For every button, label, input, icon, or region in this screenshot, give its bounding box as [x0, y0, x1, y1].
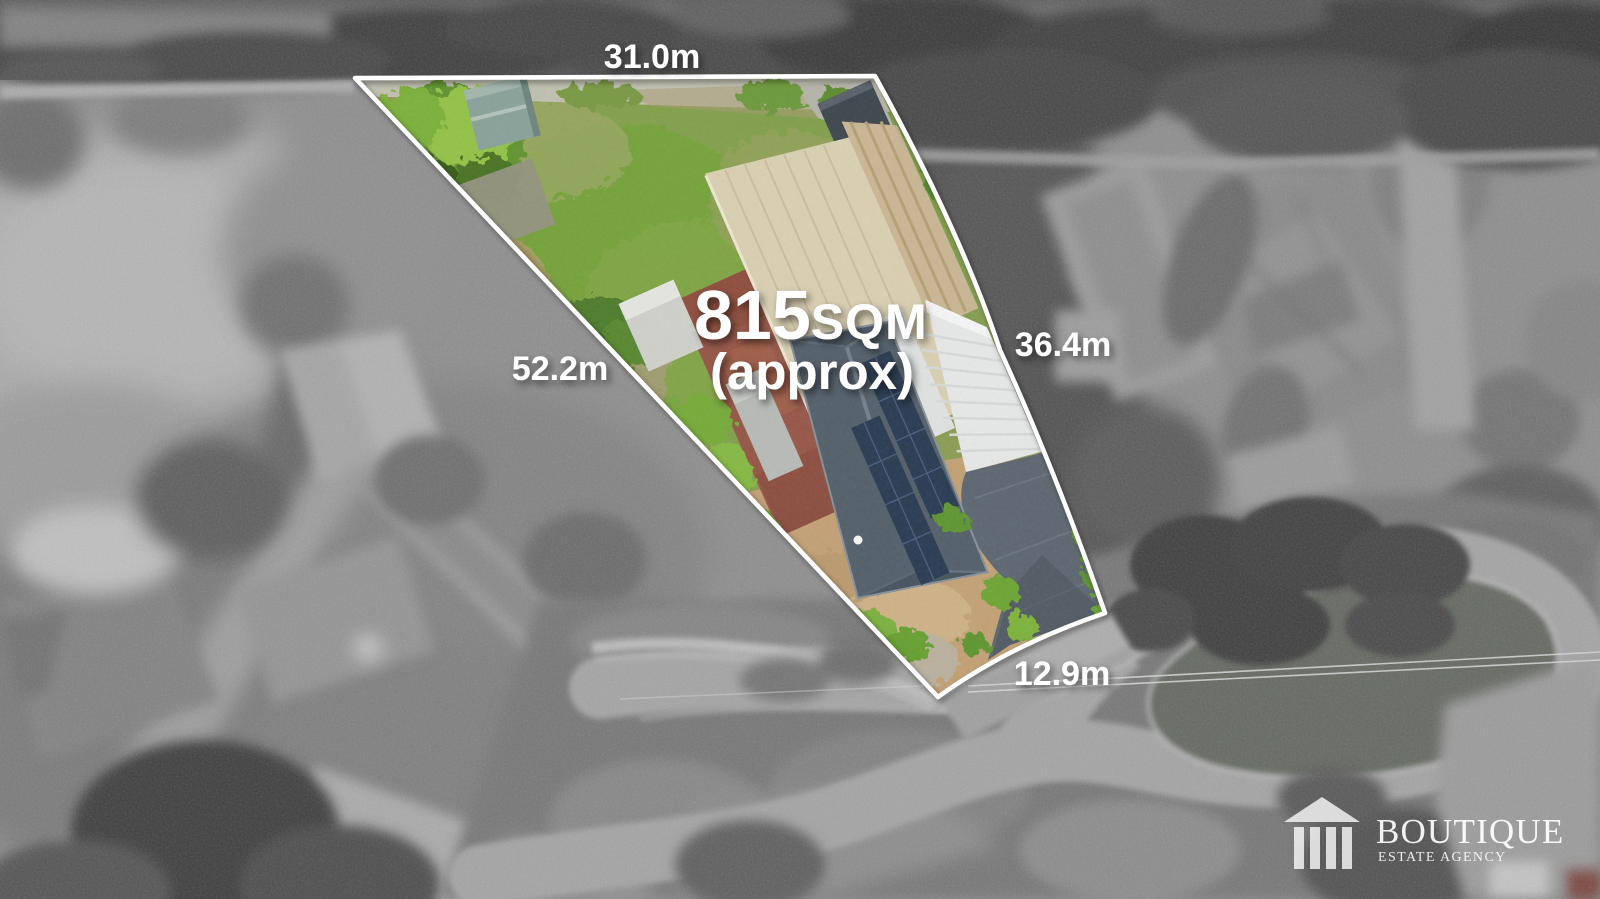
svg-text:36.4m: 36.4m	[1015, 326, 1111, 364]
svg-text:BOUTIQUE: BOUTIQUE	[1376, 812, 1564, 851]
svg-text:ESTATE AGENCY: ESTATE AGENCY	[1378, 850, 1507, 865]
svg-text:31.0m: 31.0m	[604, 38, 700, 76]
svg-text:12.9m: 12.9m	[1014, 655, 1110, 693]
svg-text:(approx): (approx)	[710, 343, 914, 400]
svg-text:52.2m: 52.2m	[512, 350, 608, 388]
